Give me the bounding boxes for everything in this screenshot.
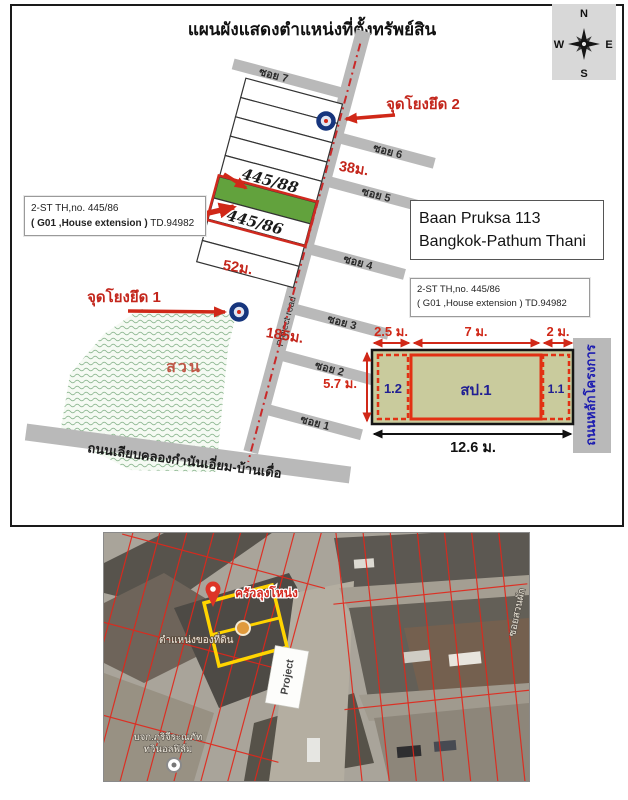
annotation-left-line1: 2-ST TH,no. 445/86 xyxy=(31,203,118,214)
zone-left-label: 1.2 xyxy=(384,381,402,396)
zone-mid-label: สป.1 xyxy=(460,382,491,399)
company-line2: ทวินอลฟิล์ม xyxy=(144,743,192,755)
soi-1-label: ซอย 1 xyxy=(299,414,331,433)
annotation-left-line2-rest: TD.94982 xyxy=(148,218,195,229)
soi-5-label: ซอย 5 xyxy=(360,186,392,205)
poi-caption-label: ตำแหน่งของที่ดิน xyxy=(159,632,234,646)
soi-3-label: ซอย 3 xyxy=(326,313,358,332)
anchor-2-dot xyxy=(324,119,328,123)
project-name-box: Baan Pruksa 113 Bangkok-Pathum Thani xyxy=(410,200,604,260)
soi-4-label: ซอย 4 xyxy=(342,253,375,273)
soi-6-label: ซอย 6 xyxy=(372,142,404,161)
dim-top-right: 2 ม. xyxy=(546,324,569,339)
main-project-road-label: ถนนหลักโครงการ xyxy=(582,344,598,445)
anchor-point-2-label: จุดโยงยึด 2 xyxy=(386,94,460,114)
anchor-1-dot xyxy=(237,310,241,314)
annotation-left-line2-bold: ( G01 ,House extension ) xyxy=(31,218,148,229)
annotation-right-line1: 2-ST TH,no. 445/86 xyxy=(417,284,500,295)
annotation-right-line2: ( G01 ,House extension ) TD.94982 xyxy=(417,298,567,309)
scanned-property-map-page: { "page": { "title": "แผนผังแสดงตำแหน่งท… xyxy=(0,0,628,800)
poi-name-label: ครัวลุงโหน่ง xyxy=(235,585,298,601)
distance-185m: 185ม. xyxy=(265,325,305,347)
annotation-box-left: 2-ST TH,no. 445/86 ( G01 ,House extensio… xyxy=(24,196,206,236)
satellite-image: ครัวลุงโหน่ง ตำแหน่งของที่ดิน Project ซอ… xyxy=(103,532,530,782)
garden-label: สวน xyxy=(166,359,202,376)
company-pin-dot xyxy=(172,763,177,768)
project-name-line2: Bangkok-Pathum Thani xyxy=(419,233,586,250)
dim-top-mid: 7 ม. xyxy=(464,324,487,339)
satellite-rendering: ครัวลุงโหน่ง ตำแหน่งของที่ดิน Project ซอ… xyxy=(104,533,529,781)
dim-left: 5.7 ม. xyxy=(323,376,357,391)
anchor-2-arrow xyxy=(346,115,395,119)
anchor-1-arrow xyxy=(128,311,225,312)
zone-right-label: 1.1 xyxy=(548,382,565,396)
annotation-box-right: 2-ST TH,no. 445/86 ( G01 ,House extensio… xyxy=(410,278,590,317)
project-name-line1: Baan Pruksa 113 xyxy=(419,210,541,227)
site-plan-drawing: สวน ถนนเลียบคลองกำนันเอี่ยม-บ้านเดื่อ ซอ… xyxy=(12,6,618,521)
distance-52m: 52ม. xyxy=(222,258,254,278)
anchor-point-1-label: จุดโยงยึด 1 xyxy=(87,287,161,307)
dim-top-left: 2.5 ม. xyxy=(374,324,408,339)
site-plan-sheet: แผนผังแสดงตำแหน่งที่ตั้งทรัพย์สิน N W E … xyxy=(10,4,624,527)
dim-bottom: 12.6 ม. xyxy=(450,440,496,456)
company-line1: บจก.ภูริจีระณภัท xyxy=(134,731,202,743)
plot-detail-diagram: ถนนหลักโครงการ 1.2 สป.1 1.1 2.5 ม. 7 ม. … xyxy=(323,324,611,456)
distance-38m: 38ม. xyxy=(338,159,370,179)
poi-dot-icon xyxy=(236,621,250,635)
